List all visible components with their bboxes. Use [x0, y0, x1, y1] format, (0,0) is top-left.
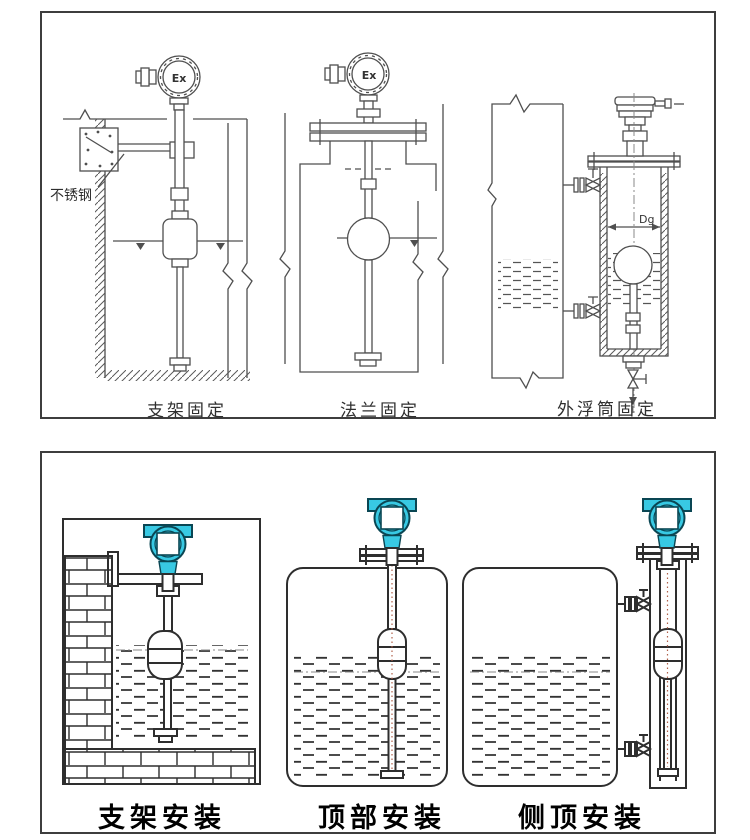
float-ball-icon	[348, 218, 390, 260]
pipe-coupling	[171, 188, 188, 200]
caption-flange-fixing: 法兰固定	[295, 396, 465, 421]
ex-label: Ex	[172, 72, 187, 85]
caption-side-top-install: 侧顶安装	[492, 796, 672, 835]
bracket-plate	[80, 128, 118, 171]
figure-bracket-fixing: 不锈钢 Ex	[50, 56, 252, 381]
caption-top-install: 顶部安装	[292, 796, 472, 835]
isolation-valve-icon	[617, 735, 650, 756]
isolation-valve-icon	[563, 169, 600, 192]
figure-side-top-install	[463, 499, 698, 788]
dg-label: Dg	[639, 213, 654, 226]
figure-external-chamber-fixing: Dg	[488, 93, 684, 413]
ex-label: Ex	[362, 69, 377, 82]
float-icon	[163, 219, 197, 259]
bottom-panel-drawing	[42, 453, 714, 832]
ex-transmitter-head-icon	[136, 56, 200, 98]
float-icon	[378, 629, 406, 679]
figure-top-install	[287, 499, 447, 786]
ex-transmitter-head-icon	[325, 53, 389, 95]
liquid	[294, 656, 440, 780]
stainless-steel-label: 不锈钢	[50, 188, 92, 204]
brick-floor	[65, 749, 255, 784]
figure-bracket-install	[63, 519, 260, 784]
transmitter-head-icon	[144, 525, 192, 591]
process-tank	[488, 95, 563, 388]
bottom-panel: 支架安装 顶部安装 侧顶安装	[40, 451, 716, 834]
float-icon	[148, 631, 182, 679]
caption-bracket-install: 支架安装	[72, 796, 252, 835]
figure-flange-fixing: Ex	[280, 53, 448, 372]
support-arm	[118, 144, 170, 151]
liquid	[498, 259, 558, 311]
liquid	[470, 656, 610, 780]
isolation-valve-icon	[563, 297, 600, 318]
brick-wall	[65, 556, 112, 749]
top-panel-drawing: 不锈钢 Ex Ex	[42, 13, 714, 417]
caption-bracket-fixing: 支架固定	[102, 396, 272, 421]
caption-external-chamber-fixing: 外浮筒固定	[522, 395, 692, 420]
float-ball-icon	[614, 246, 652, 284]
isolation-valve-icon	[617, 590, 650, 611]
transmitter-head-icon	[615, 97, 684, 156]
guide-pipe	[175, 110, 184, 219]
top-panel: 不锈钢 Ex Ex	[40, 11, 716, 419]
